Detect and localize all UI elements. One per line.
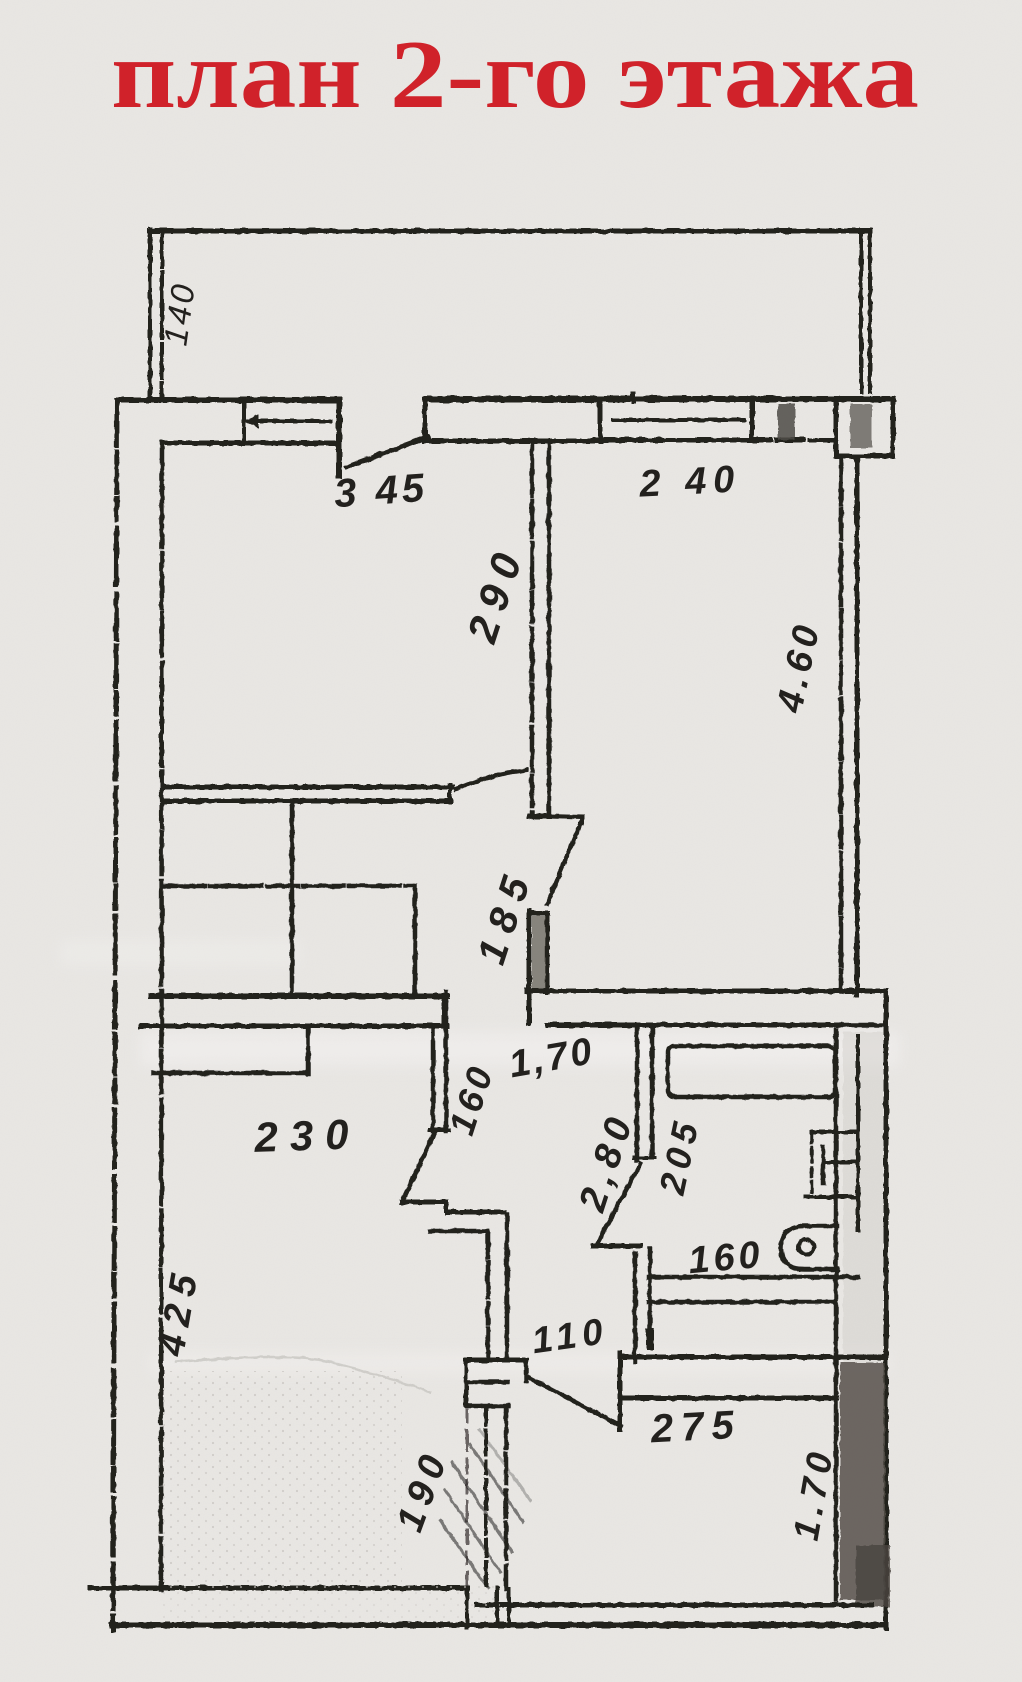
svg-text:2 40: 2 40 (637, 458, 742, 505)
svg-text:275: 275 (649, 1403, 743, 1452)
svg-text:230: 230 (253, 1110, 362, 1161)
svg-text:план 2-го этажа: план 2-го этажа (111, 21, 919, 128)
svg-text:160: 160 (687, 1234, 766, 1282)
svg-text:3 45: 3 45 (333, 466, 430, 516)
